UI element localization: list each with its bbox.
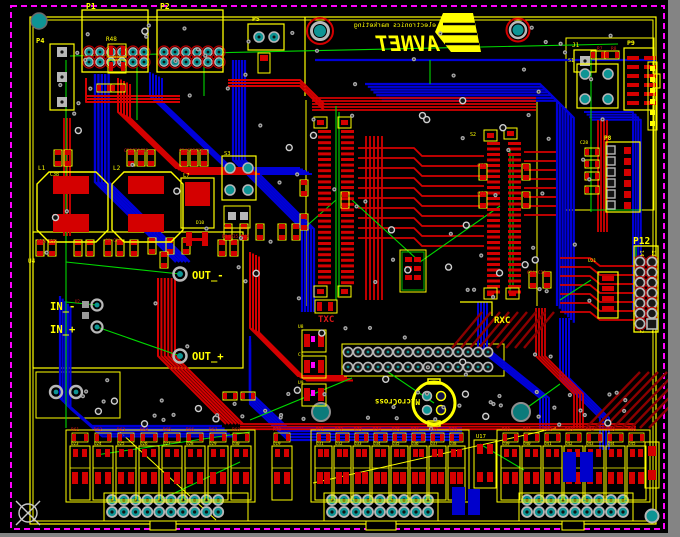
- ref-label: U23: [71, 441, 79, 446]
- smd-pad[interactable]: [341, 169, 354, 172]
- smd-pad[interactable]: [508, 164, 521, 167]
- smd-pad[interactable]: [318, 180, 331, 183]
- label-in-plus: IN_+: [50, 324, 75, 336]
- smd-pad[interactable]: [341, 158, 354, 161]
- via[interactable]: [142, 421, 148, 427]
- label-p2: P2: [160, 2, 170, 11]
- label-p4: P4: [36, 37, 44, 45]
- pad[interactable]: [647, 257, 656, 266]
- ref-label: U21: [588, 258, 596, 264]
- via[interactable]: [405, 267, 411, 273]
- pcb-editor-canvas[interactable]: electronics marketing AVNET: [0, 0, 680, 537]
- smd-pad[interactable]: [508, 219, 521, 222]
- pasteboard-bottom-band: [0, 533, 680, 537]
- smd-pad[interactable]: [318, 259, 331, 262]
- pad[interactable]: [647, 268, 656, 277]
- smd-pad[interactable]: [341, 270, 354, 273]
- pad[interactable]: [647, 288, 656, 297]
- smd-pad[interactable]: [487, 159, 500, 162]
- smd-pad[interactable]: [318, 186, 331, 189]
- label-txc: TXC: [318, 315, 334, 325]
- via[interactable]: [497, 270, 503, 276]
- avnet-logo-text: AVNET: [374, 32, 441, 56]
- via[interactable]: [483, 413, 489, 419]
- via[interactable]: [253, 270, 259, 276]
- ref-label: U32: [335, 441, 343, 446]
- via[interactable]: [446, 264, 452, 270]
- pad[interactable]: [607, 201, 615, 209]
- ref-label: R80: [502, 427, 510, 433]
- smd-pad[interactable]: [341, 180, 354, 183]
- via[interactable]: [142, 28, 148, 34]
- pad[interactable]: [607, 168, 615, 176]
- smd-pad[interactable]: [487, 181, 500, 184]
- ref-label: R81: [523, 427, 531, 433]
- label-u17: U17: [476, 434, 486, 440]
- pad[interactable]: [607, 179, 615, 187]
- pad[interactable]: [607, 146, 615, 154]
- via[interactable]: [462, 391, 468, 397]
- smd-pad[interactable]: [318, 136, 331, 139]
- smd-pad[interactable]: [508, 197, 521, 200]
- ref-label: U36: [411, 441, 419, 446]
- pad[interactable]: [635, 278, 644, 287]
- ref-label: R50 R52: [38, 239, 57, 245]
- smd-pad[interactable]: [487, 197, 500, 200]
- smd-pad[interactable]: [508, 274, 521, 277]
- ref-label: R67: [209, 427, 217, 433]
- smd-pad[interactable]: [508, 263, 521, 266]
- smd-pad[interactable]: [341, 281, 354, 284]
- ref-label: R76: [411, 427, 419, 433]
- via[interactable]: [500, 125, 506, 131]
- smd-pad[interactable]: [508, 258, 521, 261]
- smd-pad[interactable]: [318, 141, 331, 144]
- ref-label: R75: [392, 427, 400, 433]
- smd-pad[interactable]: [318, 208, 331, 211]
- label-j1: J1: [572, 42, 580, 49]
- smd-pad[interactable]: [508, 208, 521, 211]
- ref-label: R7: [597, 46, 603, 52]
- ref-label: R70: [273, 427, 281, 433]
- ref-label: U38: [449, 441, 457, 446]
- label-p12-pin1: 1: [650, 330, 656, 333]
- smd-pad[interactable]: [487, 225, 500, 228]
- via[interactable]: [310, 132, 316, 138]
- smd-pad[interactable]: [508, 225, 521, 228]
- ref-label: U43: [586, 441, 594, 446]
- smd-pad[interactable]: [341, 259, 354, 262]
- ref-label: S2: [470, 132, 476, 138]
- mounting-hole-bottom-center-right[interactable]: [512, 403, 530, 421]
- smd-pad[interactable]: [487, 164, 500, 167]
- smd-pad[interactable]: [508, 186, 521, 189]
- via[interactable]: [95, 408, 101, 414]
- pad[interactable]: [635, 309, 644, 318]
- pad[interactable]: [647, 309, 656, 318]
- ref-label: C20 C19: [527, 270, 546, 276]
- via[interactable]: [195, 406, 201, 412]
- smd-pad[interactable]: [318, 152, 331, 155]
- mounting-hole-top-left[interactable]: [31, 13, 47, 29]
- smd-pad[interactable]: [487, 170, 500, 173]
- ref-label: U34: [373, 441, 381, 446]
- ref-label: C16: [477, 191, 485, 197]
- ref-label: U33: [354, 441, 362, 446]
- smd-pad[interactable]: [487, 241, 500, 244]
- smd-pad[interactable]: [487, 203, 500, 206]
- smd-pad[interactable]: [508, 181, 521, 184]
- smd-pad[interactable]: [318, 147, 331, 150]
- via[interactable]: [388, 227, 394, 233]
- via[interactable]: [424, 117, 430, 123]
- smd-pad[interactable]: [341, 130, 354, 133]
- ref-label: U37: [430, 441, 438, 446]
- label-p5: P5: [252, 15, 260, 23]
- smd-pad[interactable]: [508, 192, 521, 195]
- ref-label: U19: [273, 441, 281, 446]
- ref-label: R8: [611, 46, 617, 52]
- pcb-layout[interactable]: electronics marketing AVNET: [0, 0, 680, 537]
- ref-label: U45: [628, 441, 636, 446]
- smd-pad[interactable]: [318, 264, 331, 267]
- origin-marker: [16, 501, 40, 525]
- smd-pad[interactable]: [508, 236, 521, 239]
- ref-label: R71: [316, 427, 324, 433]
- smd-pad[interactable]: [487, 252, 500, 255]
- smd-pad[interactable]: [318, 231, 331, 234]
- smd-pad[interactable]: [341, 236, 354, 239]
- via[interactable]: [286, 145, 292, 151]
- smd-pad[interactable]: [487, 186, 500, 189]
- via[interactable]: [75, 128, 81, 134]
- smd-pad[interactable]: [341, 248, 354, 251]
- smd-pad[interactable]: [487, 214, 500, 217]
- via[interactable]: [319, 330, 325, 336]
- smd-pad[interactable]: [318, 130, 331, 133]
- label-in-minus: IN_-: [50, 301, 75, 313]
- smd-pad[interactable]: [508, 247, 521, 250]
- smd-pad[interactable]: [318, 220, 331, 223]
- ref-label: D10: [196, 220, 204, 226]
- smd-pad[interactable]: [341, 253, 354, 256]
- ref-label: R84: [586, 427, 594, 433]
- smd-pad[interactable]: [487, 219, 500, 222]
- ref-label: C8 C21: [105, 238, 122, 244]
- ref-label: R64: [140, 427, 148, 433]
- smd-pad[interactable]: [341, 276, 354, 279]
- smd-pad[interactable]: [487, 280, 500, 283]
- smd-pad[interactable]: [341, 242, 354, 245]
- label-out-plus: OUT_+: [192, 351, 224, 363]
- smd-pad[interactable]: [341, 231, 354, 234]
- ref-label: R66: [186, 427, 194, 433]
- label-p12-pin13: 13: [650, 250, 656, 257]
- pad[interactable]: [635, 257, 644, 266]
- ref-label: U9: [298, 380, 304, 386]
- mounting-hole-top-right[interactable]: [507, 19, 530, 42]
- smd-pad[interactable]: [318, 197, 331, 200]
- pad[interactable]: [635, 299, 644, 308]
- via[interactable]: [383, 376, 389, 382]
- smd-pad[interactable]: [508, 269, 521, 272]
- ref-label: U30: [232, 441, 240, 446]
- ref-label: R83: [565, 427, 573, 433]
- label-p9: P9: [627, 39, 635, 47]
- ref-label: R74: [373, 427, 381, 433]
- smd-pad[interactable]: [318, 225, 331, 228]
- smd-pad[interactable]: [508, 159, 521, 162]
- smd-pad[interactable]: [508, 175, 521, 178]
- smd-pad[interactable]: [508, 280, 521, 283]
- smd-pad[interactable]: [508, 252, 521, 255]
- smd-pad[interactable]: [341, 147, 354, 150]
- ref-label: C13: [477, 163, 485, 169]
- smd-pad[interactable]: [487, 175, 500, 178]
- ref-label: R65: [163, 427, 171, 433]
- pad[interactable]: [607, 157, 615, 165]
- smd-pad[interactable]: [318, 281, 331, 284]
- ref-label: U24: [94, 441, 102, 446]
- smd-pad[interactable]: [487, 208, 500, 211]
- smd-pad[interactable]: [341, 152, 354, 155]
- ref-label: R82: [544, 427, 552, 433]
- smd-pad[interactable]: [341, 186, 354, 189]
- smd-pad[interactable]: [341, 175, 354, 178]
- label-p1: P1: [86, 2, 96, 11]
- label-p12: P12: [633, 236, 650, 247]
- via[interactable]: [460, 98, 466, 104]
- smd-pad[interactable]: [487, 153, 500, 156]
- ref-label: C38: [50, 172, 59, 178]
- smd-pad[interactable]: [508, 241, 521, 244]
- smd-pad[interactable]: [318, 253, 331, 256]
- smd-pad[interactable]: [341, 220, 354, 223]
- smd-pad[interactable]: [487, 263, 500, 266]
- pad[interactable]: [624, 202, 631, 209]
- ref-label: R85: [607, 427, 615, 433]
- smd-pad[interactable]: [341, 141, 354, 144]
- label-p12-pin14: 14: [638, 250, 644, 257]
- ref-label: U2: [75, 299, 80, 304]
- smd-pad[interactable]: [508, 142, 521, 145]
- ref-label: R62: [94, 427, 102, 433]
- pad[interactable]: [635, 319, 644, 328]
- ref-label: U40: [523, 441, 531, 446]
- via[interactable]: [522, 262, 528, 268]
- ref-label: U28: [186, 441, 194, 446]
- ref-label: S3: [224, 151, 231, 157]
- label-l2: L2: [113, 165, 121, 172]
- label-l1: L1: [38, 165, 46, 172]
- smd-pad[interactable]: [487, 142, 500, 145]
- smd-pad[interactable]: [341, 264, 354, 267]
- via[interactable]: [605, 420, 611, 426]
- pad[interactable]: [635, 288, 644, 297]
- ref-label: R72: [335, 427, 343, 433]
- label-u4: U4: [28, 258, 36, 265]
- label-p8: P8: [604, 135, 612, 142]
- smd-pad[interactable]: [508, 203, 521, 206]
- label-out-minus: OUT_-: [192, 270, 224, 282]
- via[interactable]: [463, 222, 469, 228]
- smd-pad[interactable]: [318, 164, 331, 167]
- avnet-logo-subtext: electronics marketing: [354, 21, 436, 29]
- pad[interactable]: [647, 278, 656, 287]
- smd-pad[interactable]: [341, 225, 354, 228]
- smd-pad[interactable]: [341, 214, 354, 217]
- ref-label: C34C35C36: [179, 148, 204, 154]
- smd-pad[interactable]: [318, 169, 331, 172]
- label-p12-pin2: 2: [638, 330, 644, 333]
- ref-label: U26: [140, 441, 148, 446]
- ref-label: U8: [298, 324, 304, 330]
- pad[interactable]: [607, 190, 615, 198]
- smd-pad[interactable]: [487, 192, 500, 195]
- ref-label: R73: [354, 427, 362, 433]
- ref-label: U41: [544, 441, 552, 446]
- mounting-hole-bottom-right[interactable]: [646, 510, 659, 523]
- ref-label: C9: [298, 352, 304, 358]
- pad[interactable]: [647, 299, 656, 308]
- ref-label: U29: [209, 441, 217, 446]
- pad[interactable]: [624, 191, 631, 198]
- ref-label: C32C33C35: [124, 148, 149, 154]
- smd-pad[interactable]: [318, 242, 331, 245]
- label-r48: R48: [106, 36, 117, 43]
- pad[interactable]: [624, 169, 631, 176]
- pad[interactable]: [624, 158, 631, 165]
- smd-pad[interactable]: [341, 136, 354, 139]
- smd-pad[interactable]: [341, 197, 354, 200]
- smd-pad[interactable]: [341, 208, 354, 211]
- via[interactable]: [532, 257, 538, 263]
- via[interactable]: [111, 398, 117, 404]
- pasteboard-right-band: [668, 0, 680, 537]
- ref-label: C28: [580, 140, 588, 146]
- ref-label: U39: [502, 441, 510, 446]
- ref-label: U25: [117, 441, 125, 446]
- smd-pad[interactable]: [487, 148, 500, 151]
- smd-pad[interactable]: [318, 192, 331, 195]
- ref-label: S1: [568, 58, 574, 64]
- via[interactable]: [52, 215, 58, 221]
- ref-label: R34R35 R42: [222, 234, 249, 240]
- smd-pad[interactable]: [508, 170, 521, 173]
- via[interactable]: [460, 359, 466, 365]
- smd-pad[interactable]: [318, 203, 331, 206]
- smd-pad[interactable]: [318, 236, 331, 239]
- smd-pad[interactable]: [508, 153, 521, 156]
- pad[interactable]: [624, 147, 631, 154]
- ref-label: U35: [392, 441, 400, 446]
- smd-pad[interactable]: [318, 270, 331, 273]
- smd-pad[interactable]: [318, 158, 331, 161]
- ref-label: U31: [316, 441, 324, 446]
- smd-pad[interactable]: [318, 276, 331, 279]
- smd-pad[interactable]: [508, 230, 521, 233]
- smd-pad[interactable]: [318, 248, 331, 251]
- mounting-hole-top-center[interactable]: [307, 18, 333, 44]
- smd-pad[interactable]: [487, 247, 500, 250]
- microcross-logo-text: MicroCross: [375, 397, 420, 406]
- pad[interactable]: [624, 180, 631, 187]
- ref-label: R86: [628, 427, 636, 433]
- via[interactable]: [294, 387, 300, 393]
- smd-pad[interactable]: [318, 175, 331, 178]
- ref-label: L7: [183, 173, 190, 179]
- ref-label: U27: [163, 441, 171, 446]
- ref-label: R78: [449, 427, 457, 433]
- ref-label: U44: [607, 441, 615, 446]
- label-rxc: RXC: [494, 316, 510, 326]
- smd-pad[interactable]: [508, 214, 521, 217]
- smd-pad[interactable]: [487, 236, 500, 239]
- via[interactable]: [174, 188, 180, 194]
- smd-pad[interactable]: [341, 164, 354, 167]
- smd-pad[interactable]: [487, 230, 500, 233]
- ref-label: R63: [117, 427, 125, 433]
- ref-label: R68: [232, 427, 240, 433]
- ref-label: R77: [430, 427, 438, 433]
- smd-pad[interactable]: [487, 258, 500, 261]
- ref-label: U42: [565, 441, 573, 446]
- pad[interactable]: [635, 268, 644, 277]
- smd-pad[interactable]: [318, 214, 331, 217]
- ref-label: R61: [71, 427, 79, 433]
